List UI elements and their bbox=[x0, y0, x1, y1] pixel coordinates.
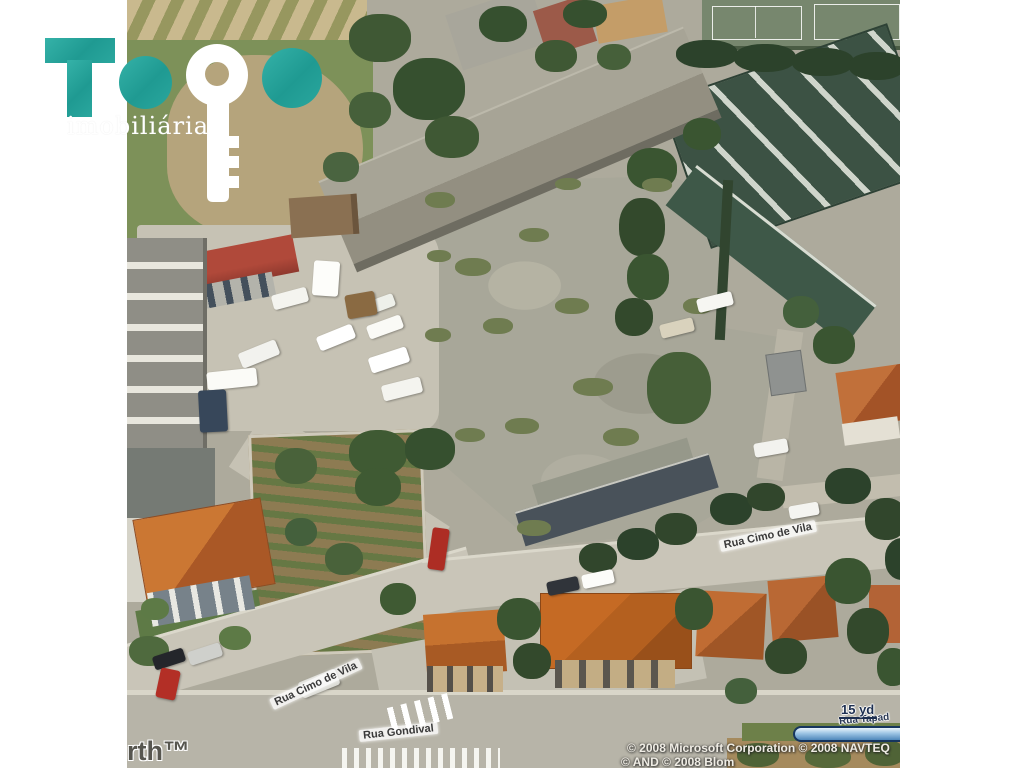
gray-sheds bbox=[765, 350, 806, 397]
house-d-roof bbox=[767, 575, 838, 643]
page: Rua Cimo de Vila Rua Cimo de Vila Rua Go… bbox=[0, 0, 1024, 768]
vegetation-blob bbox=[877, 648, 900, 686]
house-a-facade bbox=[427, 666, 503, 692]
vegetation-blob bbox=[765, 638, 807, 674]
scale-bar bbox=[793, 726, 900, 742]
house-c-roof bbox=[695, 590, 766, 659]
vegetation-blob bbox=[393, 58, 465, 120]
scale-label: 15 yd bbox=[839, 702, 876, 719]
attribution-line2: © AND © 2008 Blom bbox=[621, 755, 734, 768]
house-b-roof bbox=[540, 593, 692, 669]
attribution-line1: © 2008 Microsoft Corporation © 2008 NAVT… bbox=[627, 741, 890, 755]
logo: imobiliária bbox=[0, 0, 340, 210]
logo-tagline: imobiliária bbox=[67, 112, 209, 140]
small-red-roof bbox=[533, 0, 597, 57]
house-b-facade bbox=[555, 660, 675, 688]
industrial-roof-striped bbox=[127, 238, 207, 452]
logo-letter-t-stem bbox=[67, 60, 92, 117]
court-lines bbox=[712, 6, 802, 40]
road-north-wall bbox=[781, 474, 900, 509]
logo-letter-o2 bbox=[262, 48, 322, 108]
virtual-earth-watermark-partial: rth™ bbox=[127, 736, 190, 767]
logo-letter-o1 bbox=[119, 56, 172, 109]
court-net-line bbox=[755, 6, 756, 38]
guardrail-stripes bbox=[342, 748, 500, 768]
house-e-roof-partial bbox=[869, 585, 900, 643]
